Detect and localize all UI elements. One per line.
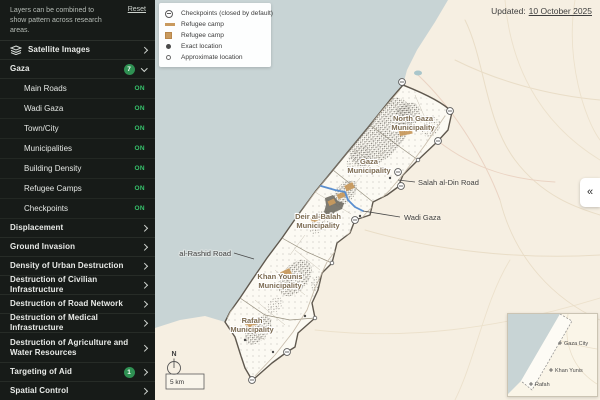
svg-text:Gaza City: Gaza City [564, 341, 588, 347]
label-gaza: Gaza [360, 157, 379, 166]
chevron-right-icon [141, 225, 147, 231]
layers-sidebar: Layers can be combined to show pattern a… [0, 0, 155, 400]
double-chevron-left-icon: « [587, 187, 593, 198]
gaza-sublayers: Main Roads ON Wadi Gaza ON Town/City ON … [0, 79, 155, 219]
legend-item: Checkpoints (closed by default) [165, 8, 265, 19]
sidebar-item-destruction-medical-infrastructure[interactable]: Destruction of Medical Infrastructure [0, 314, 155, 333]
toggle-on[interactable]: ON [134, 145, 145, 152]
svg-text:Municipality: Municipality [391, 123, 435, 132]
layer-count-badge: 1 [124, 367, 135, 378]
sidebar-item-targeting-of-aid[interactable]: Targeting of Aid 1 [0, 363, 155, 382]
svg-text:Municipality: Municipality [296, 221, 340, 230]
toggle-on[interactable]: ON [134, 185, 145, 192]
label-khan-younis: Khan Younis [257, 272, 302, 281]
sublayer-municipalities[interactable]: Municipalities ON [0, 139, 155, 159]
scale-label: 5 km [170, 379, 184, 386]
sublayer-town-city[interactable]: Town/City ON [0, 119, 155, 139]
sidebar-item-spatial-control[interactable]: Spatial Control [0, 382, 155, 400]
chevron-right-icon [141, 244, 147, 250]
svg-text:Municipality: Municipality [347, 166, 391, 175]
toggle-on[interactable]: ON [134, 85, 145, 92]
sidebar-item-destruction-agriculture-water[interactable]: Destruction of Agriculture and Water Res… [0, 333, 155, 363]
label-al-rashid-road: al-Rashid Road [179, 249, 231, 258]
scale-bar: 5 km [166, 374, 204, 389]
chevron-down-icon [141, 65, 147, 71]
satellite-layers-icon [10, 45, 22, 55]
label-wadi-gaza: Wadi Gaza [404, 213, 442, 222]
sidebar-item-destruction-road-network[interactable]: Destruction of Road Network [0, 295, 155, 314]
toggle-on[interactable]: ON [134, 205, 145, 212]
chevron-right-icon [141, 320, 147, 326]
chevron-right-icon [141, 282, 147, 288]
sublayer-wadi-gaza[interactable]: Wadi Gaza ON [0, 99, 155, 119]
refugee-camp-line-icon [165, 23, 177, 26]
checkpoint-icon [435, 138, 442, 145]
sidebar-item-satellite-images[interactable]: Satellite Images [0, 41, 155, 60]
sublayer-checkpoints[interactable]: Checkpoints ON [0, 199, 155, 219]
sublayer-main-roads[interactable]: Main Roads ON [0, 79, 155, 99]
chevron-right-icon [141, 369, 147, 375]
chevron-right-icon [141, 47, 147, 53]
expand-panel-button[interactable]: « [580, 178, 600, 207]
legend-item: Refugee camp [165, 30, 265, 41]
approximate-location-icon [165, 55, 177, 60]
inset-map-svg: Gaza City Khan Yunis Rafah [508, 314, 597, 396]
svg-text:Municipality: Municipality [230, 325, 274, 334]
pond [414, 71, 422, 76]
sidebar-intro-text: Layers can be combined to show pattern a… [10, 6, 110, 35]
sidebar-item-displacement[interactable]: Displacement [0, 219, 155, 238]
label-north-gaza: North Gaza [393, 114, 434, 123]
sidebar-intro: Layers can be combined to show pattern a… [0, 0, 155, 41]
legend-item: Refugee camp [165, 19, 265, 30]
svg-text:Khan Yunis: Khan Yunis [555, 368, 583, 374]
toggle-on[interactable]: ON [134, 105, 145, 112]
label-deir-al-balah: Deir al-Balah [295, 212, 341, 221]
checkpoint-icon [399, 79, 406, 86]
legend-item: Exact location [165, 41, 265, 52]
label-rafah: Rafah [242, 316, 263, 325]
sublayer-refugee-camps[interactable]: Refugee Camps ON [0, 179, 155, 199]
checkpoint-icon [284, 349, 291, 356]
reset-link[interactable]: Reset [128, 6, 146, 35]
chevron-right-icon [141, 263, 147, 269]
compass-north-label: N [171, 351, 176, 358]
chevron-right-icon [141, 388, 147, 394]
sidebar-item-gaza[interactable]: Gaza 7 [0, 60, 155, 79]
updated-stamp: Updated:10 October 2025 [491, 6, 592, 16]
toggle-on[interactable]: ON [134, 125, 145, 132]
chevron-right-icon [141, 345, 147, 351]
checkpoint-icon [398, 183, 405, 190]
svg-text:Municipality: Municipality [258, 281, 302, 290]
sidebar-item-ground-invasion[interactable]: Ground Invasion [0, 238, 155, 257]
svg-text:Rafah: Rafah [535, 382, 550, 388]
legend-item: Approximate location [165, 52, 265, 63]
sublayer-building-density[interactable]: Building Density ON [0, 159, 155, 179]
sidebar-item-label: Satellite Images [28, 45, 142, 55]
inset-locator-map: Gaza City Khan Yunis Rafah [507, 313, 598, 397]
layer-count-badge: 7 [124, 64, 135, 75]
chevron-right-icon [141, 301, 147, 307]
label-salah-al-din-road: Salah al-Din Road [418, 178, 479, 187]
toggle-on[interactable]: ON [134, 165, 145, 172]
map-legend: Checkpoints (closed by default) Refugee … [159, 3, 271, 67]
map-canvas[interactable]: North Gaza Municipality Gaza Municipalit… [155, 0, 600, 400]
refugee-camp-area-icon [165, 32, 177, 39]
sidebar-item-density-urban-destruction[interactable]: Density of Urban Destruction [0, 257, 155, 276]
checkpoint-closed-icon [165, 10, 177, 18]
checkpoint-icon [447, 108, 454, 115]
exact-location-icon [165, 44, 177, 49]
sidebar-item-label: Gaza [10, 64, 124, 74]
checkpoint-icon [352, 217, 359, 224]
checkpoint-icon [249, 377, 256, 384]
sidebar-item-destruction-civilian-infrastructure[interactable]: Destruction of Civilian Infrastructure [0, 276, 155, 295]
checkpoint-icon [395, 169, 402, 176]
